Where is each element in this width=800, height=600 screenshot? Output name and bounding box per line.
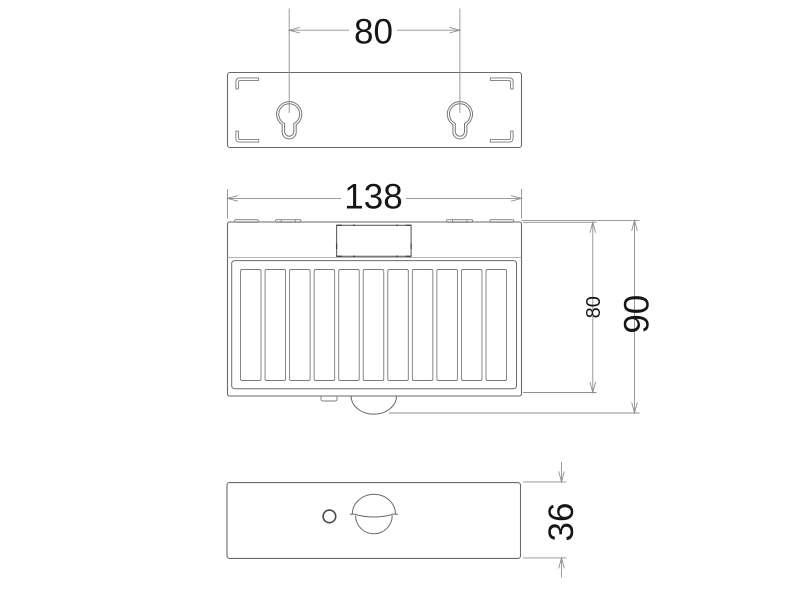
svg-text:36: 36 [542, 503, 581, 542]
svg-text:138: 138 [344, 178, 402, 217]
svg-text:90: 90 [618, 295, 657, 334]
svg-text:80: 80 [354, 13, 393, 52]
svg-text:80: 80 [583, 296, 605, 318]
